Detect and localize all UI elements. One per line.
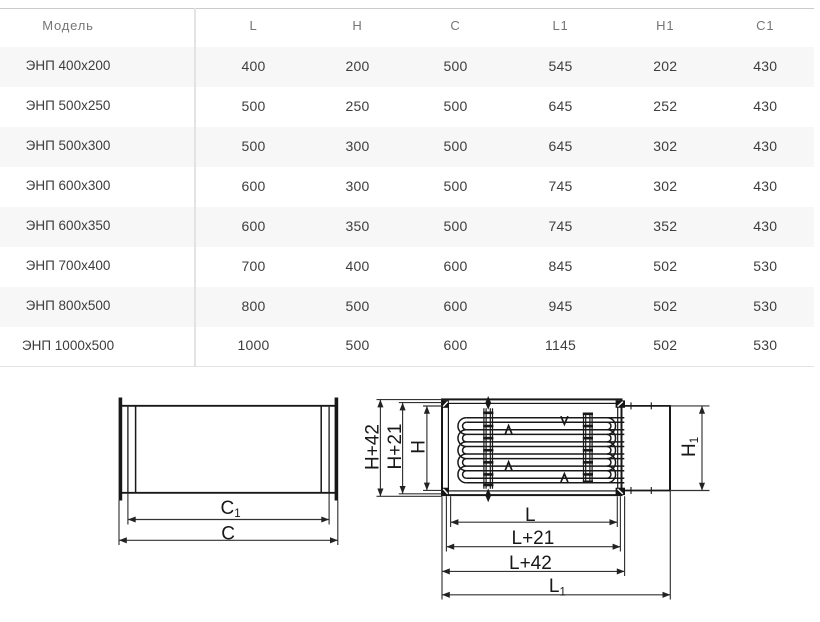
svg-text:L: L: [525, 505, 536, 526]
svg-text:C: C: [221, 523, 235, 544]
svg-text:H1: H1: [679, 437, 701, 457]
svg-text:L1: L1: [549, 576, 566, 598]
svg-text:H+21: H+21: [385, 424, 406, 470]
svg-text:C1: C1: [221, 498, 241, 520]
svg-text:H: H: [408, 440, 429, 454]
svg-text:L+42: L+42: [509, 553, 552, 574]
svg-text:L+21: L+21: [512, 528, 555, 549]
svg-text:H+42: H+42: [363, 424, 384, 470]
